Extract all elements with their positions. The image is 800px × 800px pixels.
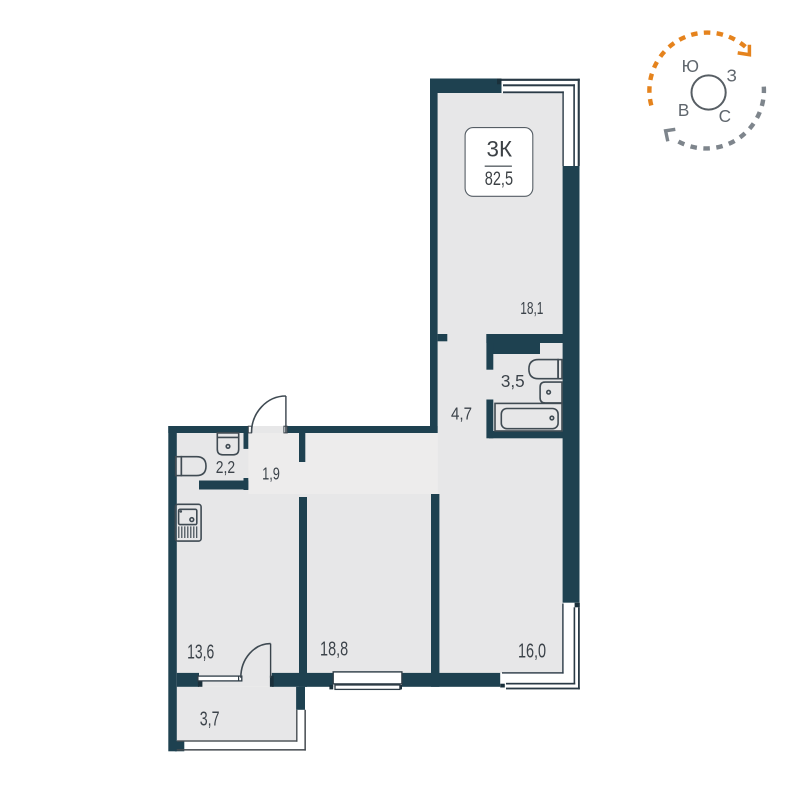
svg-text:В: В — [678, 100, 689, 120]
svg-text:13,6: 13,6 — [187, 642, 214, 664]
svg-text:С: С — [719, 106, 731, 126]
svg-text:Ю: Ю — [682, 56, 699, 76]
svg-text:3К: 3К — [487, 137, 513, 162]
svg-text:18,8: 18,8 — [320, 638, 348, 660]
svg-text:2,2: 2,2 — [216, 457, 235, 477]
svg-text:18,1: 18,1 — [520, 298, 543, 318]
svg-text:4,7: 4,7 — [451, 404, 472, 424]
svg-text:1,9: 1,9 — [262, 463, 280, 483]
svg-text:З: З — [727, 66, 737, 86]
svg-text:82,5: 82,5 — [485, 169, 513, 190]
svg-text:3,5: 3,5 — [501, 371, 525, 391]
svg-text:3,7: 3,7 — [200, 709, 220, 731]
svg-text:16,0: 16,0 — [518, 641, 546, 663]
